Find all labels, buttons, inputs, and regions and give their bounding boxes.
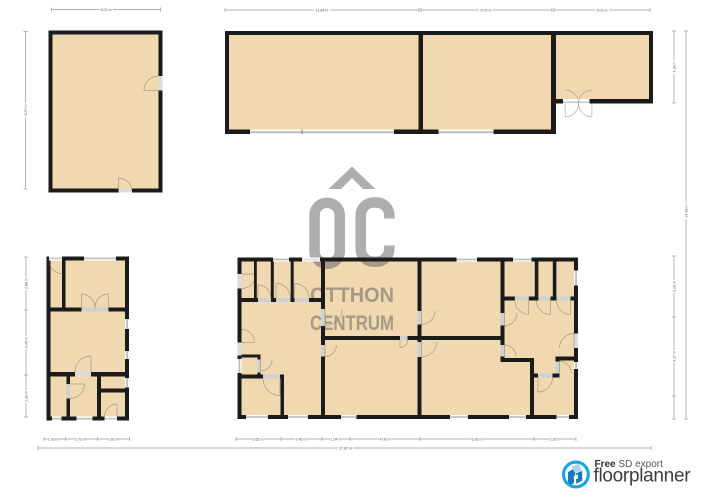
- svg-text:1.54 m: 1.54 m: [331, 437, 342, 441]
- svg-text:3.26 m: 3.26 m: [672, 281, 676, 292]
- svg-text:11.84 m: 11.84 m: [316, 8, 329, 12]
- svg-text:2.62 m: 2.62 m: [253, 437, 264, 441]
- svg-text:4.06 m: 4.06 m: [380, 437, 391, 441]
- svg-text:2.46 m: 2.46 m: [296, 437, 307, 441]
- svg-text:4.27 m: 4.27 m: [672, 351, 676, 362]
- svg-text:2.35 m: 2.35 m: [550, 437, 561, 441]
- svg-text:6.03 m: 6.03 m: [597, 8, 608, 12]
- svg-text:2.88 m: 2.88 m: [24, 278, 28, 289]
- svg-text:37.62 m: 37.62 m: [339, 446, 352, 450]
- svg-text:5.97 m: 5.97 m: [24, 105, 28, 116]
- svg-text:1.16 m: 1.16 m: [48, 437, 59, 441]
- svg-text:1.62 m: 1.62 m: [108, 437, 119, 441]
- svg-text:floorplanner: floorplanner: [594, 466, 692, 487]
- svg-text:6.01 m: 6.01 m: [101, 8, 112, 12]
- svg-text:24.18 m: 24.18 m: [684, 205, 688, 218]
- svg-text:3.45 m: 3.45 m: [24, 337, 28, 348]
- svg-text:1.73 m: 1.73 m: [75, 437, 86, 441]
- svg-text:6.02 m: 6.02 m: [481, 8, 492, 12]
- svg-text:6.36 m: 6.36 m: [472, 437, 483, 441]
- svg-text:4.28 m: 4.28 m: [672, 62, 676, 73]
- svg-text:2.26 m: 2.26 m: [24, 391, 28, 402]
